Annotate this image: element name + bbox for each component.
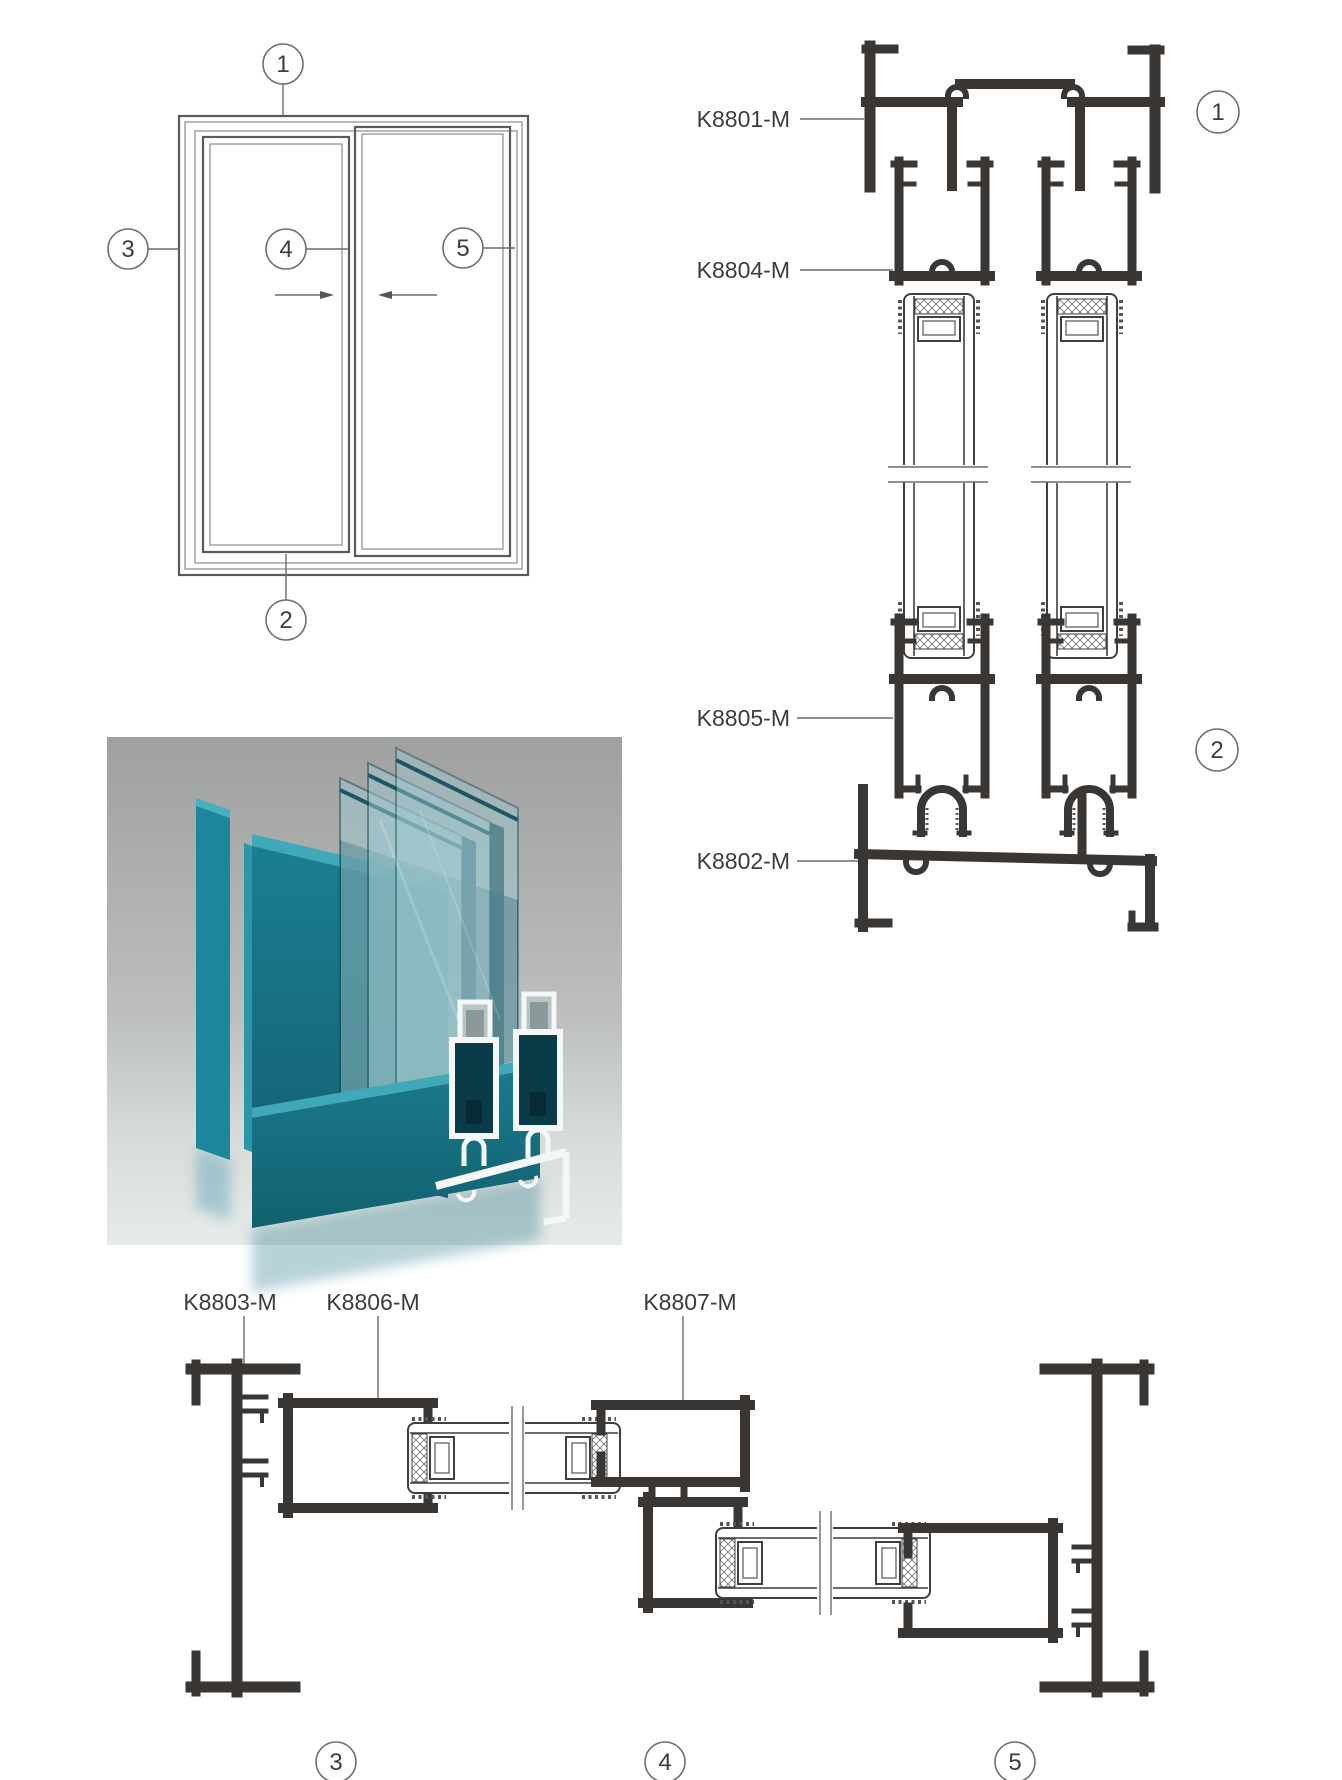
- marker-4-elevation: 4: [266, 229, 349, 269]
- spacer-hatch-bottom: [915, 634, 963, 649]
- svg-text:1: 1: [276, 51, 289, 78]
- marker-5-section: 5: [995, 1742, 1035, 1780]
- glazing-unit-h-left: [408, 1406, 620, 1510]
- svg-text:K8802-M: K8802-M: [697, 848, 790, 874]
- spacer-hatch-left: [720, 1539, 735, 1587]
- marker-5-elevation: 5: [443, 228, 515, 268]
- label-bottom-sash-rail: K8805-M: [697, 705, 893, 731]
- marker-2-section: 2: [1196, 729, 1238, 771]
- roller-hook: [1068, 789, 1110, 833]
- marker-1-elevation: 1: [263, 44, 303, 116]
- sliding-panel-left: [203, 137, 349, 552]
- frame-outer: [179, 116, 528, 575]
- sliding-panel-right: [355, 127, 510, 556]
- marker-3-section: 3: [316, 1742, 356, 1780]
- svg-text:K8806-M: K8806-M: [326, 1289, 419, 1315]
- top-sash-rail-right: [1041, 161, 1137, 281]
- svg-text:K8804-M: K8804-M: [697, 257, 790, 283]
- spacer-hatch-top: [1058, 299, 1106, 314]
- label-top-sash-rail: K8804-M: [697, 257, 893, 283]
- label-side-jamb: K8803-M: [183, 1289, 276, 1364]
- top-sash-rail-left: [894, 161, 990, 281]
- horizontal-section: K8803-M K8806-M K8807-M: [183, 1289, 1149, 1780]
- glazing-unit-left: [888, 294, 988, 658]
- spacer-hatch-bottom: [1058, 634, 1106, 649]
- render-back-fin: [196, 798, 230, 1160]
- label-sash-side-stile: K8806-M: [326, 1289, 419, 1398]
- marker-3-elevation: 3: [108, 229, 179, 269]
- arrow-head-right: [320, 291, 334, 299]
- left-jamb-profile: [191, 1364, 295, 1692]
- arrow-head-left: [378, 291, 392, 299]
- marker-1-section: 1: [1197, 91, 1239, 133]
- svg-text:4: 4: [279, 236, 292, 263]
- marker-2-elevation: 2: [266, 554, 306, 640]
- svg-text:2: 2: [279, 607, 292, 634]
- label-head-frame: K8801-M: [697, 106, 864, 132]
- label-sill-frame: K8802-M: [697, 848, 858, 874]
- svg-text:1: 1: [1211, 99, 1224, 126]
- svg-text:5: 5: [456, 235, 469, 262]
- svg-text:K8801-M: K8801-M: [697, 106, 790, 132]
- svg-text:4: 4: [658, 1749, 671, 1776]
- label-meeting-stile: K8807-M: [643, 1289, 736, 1400]
- vertical-section: K8801-M K8804-M K8805-M K8802-M 1 2: [697, 46, 1239, 928]
- elevation-view: 1 2 3 4 5: [108, 44, 528, 640]
- drawing-sheet: 1 2 3 4 5: [0, 0, 1342, 1780]
- svg-text:K8805-M: K8805-M: [697, 705, 790, 731]
- svg-text:3: 3: [329, 1749, 342, 1776]
- frame-outer-inner-line: [185, 122, 522, 569]
- track-clip: [1090, 864, 1110, 874]
- glazing-unit-right: [1031, 294, 1131, 658]
- roller-hook: [921, 789, 963, 833]
- svg-text:2: 2: [1210, 737, 1223, 764]
- marker-4-section: 4: [645, 1742, 685, 1780]
- svg-text:3: 3: [121, 236, 134, 263]
- track-clip: [906, 862, 926, 872]
- profile-render-image: [107, 737, 622, 1292]
- svg-text:5: 5: [1008, 1749, 1021, 1776]
- spacer-hatch-top: [915, 299, 963, 314]
- svg-text:K8807-M: K8807-M: [643, 1289, 736, 1315]
- technical-drawing-canvas: 1 2 3 4 5: [0, 0, 1342, 1780]
- svg-text:K8803-M: K8803-M: [183, 1289, 276, 1315]
- spacer-hatch-left: [412, 1434, 427, 1482]
